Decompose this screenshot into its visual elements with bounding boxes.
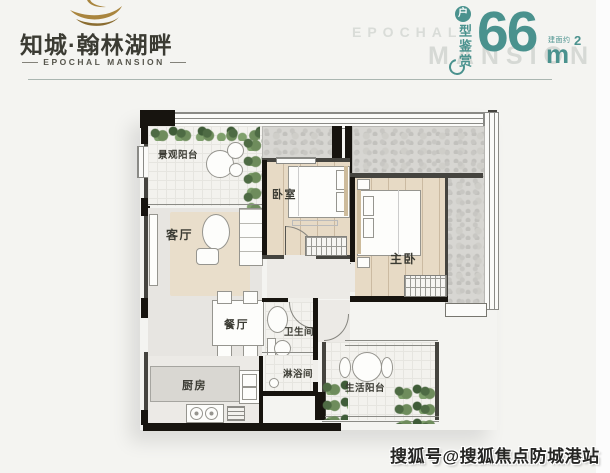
balcony-chair: [229, 163, 243, 177]
bath-shower-divider: [262, 352, 313, 353]
shower-door-gap: [313, 360, 318, 382]
unit-type-badge-circle: 户: [455, 6, 471, 22]
area-unit: m: [546, 41, 569, 67]
label-living-room: 客厅: [166, 226, 193, 243]
master-bed-duvet-line: [398, 190, 399, 254]
kitchen-sink-bowl: [242, 374, 257, 387]
label-bathroom: 卫生间: [284, 324, 314, 338]
label-dining-room: 餐厅: [224, 316, 249, 332]
label-kitchen: 厨房: [182, 377, 207, 393]
ac-ledge: [445, 303, 487, 317]
dining-chair: [217, 291, 232, 304]
shower-drain: [269, 378, 279, 388]
bedroom-door-leaf: [285, 226, 286, 255]
master-wardrobe: [404, 275, 447, 297]
kitchen-sink-bowl: [242, 387, 257, 400]
bed-headboard: [344, 166, 348, 216]
bed-bench: [292, 220, 338, 226]
stove-burner: [190, 407, 203, 420]
utility-table: [352, 352, 382, 382]
right-window-band: [483, 112, 499, 310]
bedroom-left-wall: [262, 160, 267, 257]
brand-name: 知城·翰林湖畔: [20, 26, 173, 60]
master-bed-headboard: [357, 190, 361, 254]
vent-grill: [227, 406, 245, 421]
bg-watermark-epochal: EPOCHAL: [352, 24, 462, 40]
exterior-texture: [445, 176, 485, 304]
armchair: [196, 248, 219, 265]
corridor: [267, 259, 350, 299]
master-bed-pillow: [363, 196, 374, 216]
master-top-wall: [350, 173, 483, 178]
utility-balcony-top-wall: [345, 340, 438, 346]
credit-watermark: 搜狐号@搜狐焦点防城港站: [390, 442, 598, 467]
label-master-bedroom: 主卧: [390, 250, 417, 267]
header-divider: [28, 79, 552, 80]
utility-chair: [339, 357, 351, 378]
exterior-texture: [352, 126, 485, 178]
photo-edge-strip: [596, 0, 610, 473]
master-bed-pillow: [363, 218, 374, 238]
nightstand: [357, 179, 370, 190]
kitchen-bottom-wall: [143, 423, 341, 431]
shower-bottom-wall: [262, 391, 318, 396]
kitchen-right-wall: [259, 356, 263, 423]
tv-console: [149, 214, 158, 286]
dining-chair: [243, 291, 258, 304]
bedroom-window: [276, 157, 316, 164]
floorplan-poster: { "brand": { "name": "知城·翰林湖畔", "name_en…: [0, 0, 610, 473]
label-bedroom: 卧室: [272, 186, 297, 202]
area-unit-superscript: 2: [574, 33, 581, 48]
label-utility-balcony: 生活阳台: [345, 380, 385, 394]
nightstand: [357, 257, 370, 268]
stove-burner: [205, 407, 218, 420]
master-left-wall: [350, 177, 355, 262]
coffee-table: [202, 214, 230, 250]
label-shower-room: 淋浴间: [283, 366, 313, 380]
balcony-chair: [227, 142, 244, 159]
bed-duvet-line: [298, 166, 299, 216]
brand-name-en: EPOCHAL MANSION: [20, 57, 188, 67]
utility-chair: [381, 357, 393, 378]
bedroom-wardrobe: [305, 236, 347, 256]
label-view-balcony: 景观阳台: [158, 147, 198, 161]
area-value: 66: [477, 2, 536, 62]
sofa: [239, 208, 263, 266]
utility-balcony-plants: [394, 384, 438, 424]
